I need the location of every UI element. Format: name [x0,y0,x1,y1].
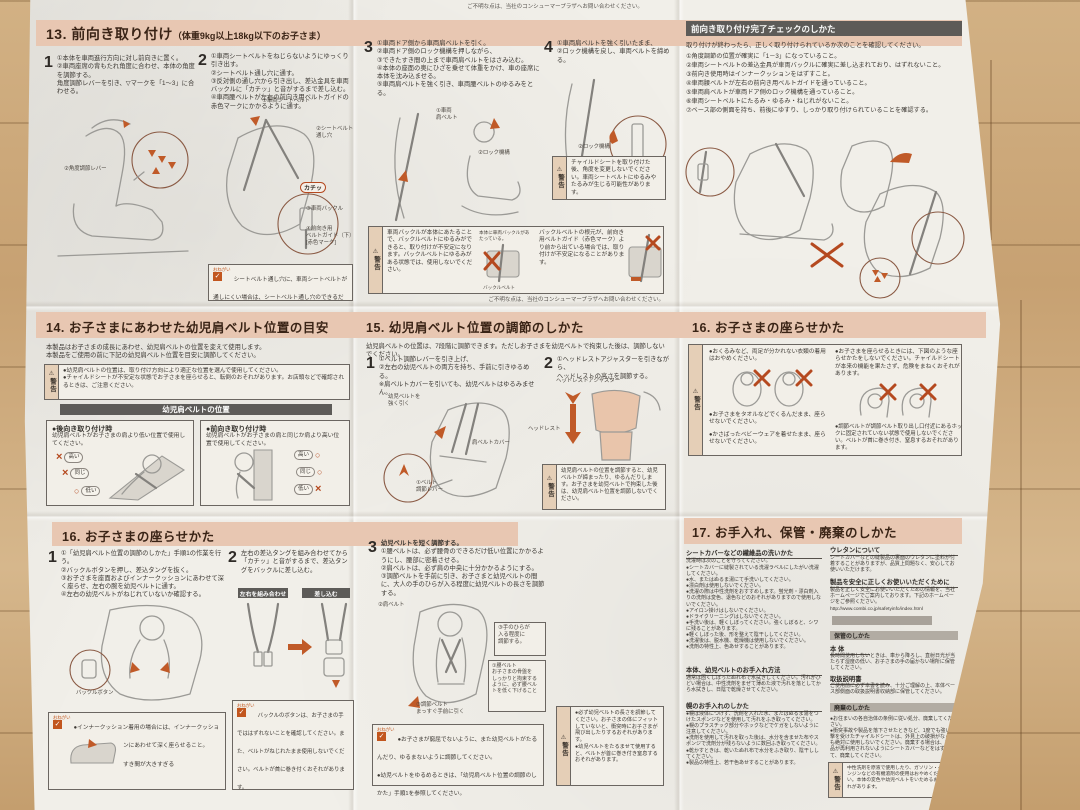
illustration-shoulder-belt-pinch [366,112,536,224]
warning-tab: ⚠ 警告 [45,365,59,399]
label-forward-belt-guide: ④前向き用 ベルトガイド（下） [赤色マーク] [306,226,355,246]
illustration-buckle-loose [481,243,525,283]
warning-triangle-icon: ⚠ [833,769,838,775]
section13-title-sub: （体重9kg以上18kg以下のお子さま） [173,31,326,41]
warning-tab: ⚠ 警告 [689,345,703,455]
warning-seating-content: ●おくるみなど、両足が分かれない衣類の着用はおやめください。 ●お子さまをタオル… [703,345,961,455]
label-pull-belt: 幼児ベルトを 強く引く [388,394,420,408]
warning-buckle-text-b: バックルベルトの根元が、前向き用ベルトガイド（赤色マーク）より前から出ている場合… [535,227,631,270]
check-item: ⑤車両肩ベルトが車両ドア側のロック機構を通っていること。 [686,89,960,97]
warning-word: 警告 [559,742,569,757]
step-4-text: ①車両肩ベルトを強く引いたまま、 ②ロック機構を戻し、車両ベルトを締める。 [557,40,672,65]
warning-belt-adjust-text: 幼児肩ベルトの位置を調節すると、幼児ベルトが締まったり、ゆるんだりします。お子さ… [557,465,665,509]
warning-triangle-icon: ⚠ [693,389,698,395]
mark-row-high-fwd: 高い ○ [294,450,320,460]
onegai-box-belt-slot: おねがい ✓ シートベルト通し穴に、車両シートベルトが通しにくい場合は、シートベ… [208,264,353,301]
label-belt-slot: ②シートベルト 通し穴 [316,126,356,140]
warning-tab: ⚠ 警告 [557,707,571,785]
label-shoulder-belt: ②肩ベルト [378,602,404,609]
caption-buckle-belt: バックルベルト [483,285,515,291]
disposal-item: ●お住まいの各自治体の条例に従い処分、廃棄してください。 [830,716,956,728]
hood-item: ●幌のプラスチック部分やホックなどでケガをしないように注意してください。 [686,723,822,735]
check-section-header-text: 前向き取り付け完了チェックのしかた [691,23,836,35]
checkmark-icon: ✓ [213,272,222,281]
o-mark: ○ [74,487,79,496]
bar-combine-tongues: 左右を組み合わせ [238,588,288,598]
seating-bullet-1: ●おくるみなど、両足が分かれない衣類の着用はおやめください。 [705,346,831,367]
pill-same: 同じ [70,468,89,478]
storage-bar-text: 保管のしかた [834,631,870,640]
step16-2-number: 2 [228,550,237,575]
illustration-tongue-buckle [238,602,354,694]
label-adjust-belt: ③調節ベルト まっすぐ手前に引く [416,702,464,716]
step16-1-text: ①「幼児肩ベルト位置の調節のしかた」手順1の作業を行う。 ②バックルボタンを押し… [61,550,230,600]
belt-position-bar: 幼児肩ベルトの位置 [60,404,332,415]
top-contact-note: ご不明な点は、当社のコンシューマープラザへお問い合わせください。 [390,2,720,10]
section13-title: 13. 前向き取り付け（体重9kg以上18kg以下のお子さま） [46,24,326,44]
warning-box-harness-length: ⚠ 警告 ●必ず幼児ベルトの長さを調節してください。お子さまの体にフィットしてい… [556,706,664,786]
label-vehicle-buckle: ③車両バックル [306,206,343,213]
warning-box-solvent: ⚠ 警告 中性洗剤を原液で使用したり、ガソリン・ベンジンなどの有機溶剤の使用はお… [828,762,948,798]
step16-3-number: 3 [368,540,377,598]
storage-bar: 保管のしかた [830,631,958,640]
step16-3-title: 幼児ベルトを短く調節する。 [381,540,463,547]
pill-high: 高い [294,450,313,460]
step16-3-wrap: 幼児ベルトを短く調節する。 ①腰ベルトは、必ず腰骨のできるだけ低い位置にかかるよ… [381,540,548,598]
label-click-sound: カチッ [300,182,326,193]
label-vehicle-shoulder-belt: ①車両 肩ベルト [436,108,470,122]
step16-3-text: ①腰ベルトは、必ず腰骨のできるだけ低い位置にかかるようにし、腰部に密着させる。 … [381,548,545,596]
callout-palm-text: ③手のひらが 入る程度に 調節する。 [498,625,544,645]
fold-crease-vertical [674,0,684,810]
checkmark-icon: ✓ [53,720,62,729]
onegai-box-inner-cushion: おねがい ✓ ●インナークッション着用の場合には、インナークッションにあわせて深… [48,712,226,790]
illustration-seat-recline [48,108,198,266]
step-3-number: 3 [364,40,373,98]
section17-title-text: 17. お手入れ、保管・廃棄のしかた [692,526,897,540]
step-4: 4 ①車両肩ベルトを強く引いたまま、 ②ロック機構を戻し、車両ベルトを締める。 [544,40,672,65]
label-headrest-adjuster: ヘッドレストアジャスター [556,378,620,385]
illustration-check-overview [684,134,964,298]
unit-text: 長時間使用しないときは、車から降ろし、直射日光が当たらず湿度の低い、お子さまの手… [830,653,958,671]
disposal-list: ●お住まいの各自治体の条例に従い処分、廃棄してください。 ●衝突事故や製品を落下… [830,716,956,759]
bar-combine-text: 左右を組み合わせ [240,589,286,598]
wash-item: ●洗濯の際は中性洗剤をおすすめします。蛍光剤・漂白剤入りの洗剤は変色、退色などの… [686,589,822,607]
pill-same: 同じ [296,467,315,477]
hood-item: ●製品の特性上、若干色あせすることがあります。 [686,760,822,766]
warning-word: 警告 [371,256,381,271]
illustration-belt-loosen [382,392,532,508]
warning-triangle-icon: ⚠ [561,735,566,741]
section16-title: 16. お子さまの座らせかた [692,317,845,337]
check-item: ⑦ベース部の側面を持ち、前後にゆすり、しっかり取り付けられていることを確認する。 [686,107,960,115]
warning-triangle-icon: ⚠ [557,167,562,173]
body-care-text: 通常は固くしぼったぬれ布で水拭きしてください。汚れがひどい場合は、中性洗剤をまぜ… [686,675,822,693]
hood-item: ●洗剤を使用して汚れを取った後は、水分を含ませた布やスポンジで洗剤分が残らないよ… [686,735,822,747]
wash-item: ●洗剤の特性上、色あせすることがあります。 [686,644,822,650]
illustration-bad-seating-x [855,381,935,419]
warning-tab: ⚠ 警告 [829,763,843,797]
illustration-swaddled-baby-x [727,367,811,407]
illustration-rear-facing-child [92,448,188,502]
wash-item: ●シートカバーに縫製されている洗濯ラベルにしたがい洗濯してください。 [686,565,822,577]
photo-stage: ご不明な点は、当社のコンシューマープラザへお問い合わせください。 13. 前向き… [0,0,1080,810]
warning-word: 警告 [47,378,57,393]
check-item: ②車両シートベルトの差込金具が車両バックルに確実に差し込まれており、はずれないこ… [686,62,960,70]
onegai-icon: おねがい ✓ [213,268,231,281]
section17-title: 17. お手入れ、保管・廃棄のしかた [692,522,897,542]
section14-title: 14. お子さまにあわせた幼児肩ベルト位置の目安 [46,317,329,337]
manual-text: ご使用前に必ず本書を読み、十分ご理解の上、本体ベース部側面の取扱説明書収納部に保… [830,683,958,695]
onegai-icon: おねがい ✓ [53,716,71,729]
warning-buckle-content: 車両バックルが本体にあたることで、バックルベルトにゆるみができると、取り付けが不… [383,227,663,293]
manual-sheet: ご不明な点は、当社のコンシューマープラザへお問い合わせください。 13. 前向き… [0,0,1080,810]
x-mark: × [315,484,321,495]
illustration-guide-position [625,233,665,285]
step16-1-number: 1 [48,550,57,600]
safety-url: http://www.combi.co.jp/safetyinfo/index.… [830,607,958,613]
warning-angle-text: チャイルドシートを取り付けた後、角度を変更しないでください。車両シートベルトにゆ… [567,157,665,199]
warning-tab: ⚠ 警告 [543,465,557,509]
disposal-bar: 廃棄のしかた [830,703,958,712]
illustration-forward-facing-child [210,448,290,502]
checkmark-icon: ✓ [377,732,386,741]
wood-plank-joint [990,60,992,240]
wash-list: ●シートカバーに縫製されている洗濯ラベルにしたがい洗濯してください。 ●水、また… [686,565,822,650]
pill-low: 低い [81,486,100,496]
x-mark: × [62,468,68,479]
label-shoulder-belt-cover: 肩ベルトカバー [472,440,510,447]
wash-item: ●手洗い後は、軽くしぼってください。強くしぼると、シワに残ることがあります。 [686,620,822,632]
warning-word: 警告 [555,174,565,189]
check-list: ①角度調節の位置が確実に「1－3」になっていること。 ②車両シートベルトの差込金… [686,53,960,116]
caption-gap-too-big: すき間が大きすぎる [123,762,174,769]
pill-low: 低い [294,484,313,494]
check-section-header: 前向き取り付け完了チェックのしかた [686,21,962,36]
warning-triangle-icon: ⚠ [547,476,552,482]
disposal-item: ●衝突事故や製品を落下させたときなど、1度でも強い衝撃を受けたチャイルドシートは… [830,728,956,758]
bar-insert-tongue: 差し込む [302,588,350,598]
illustration-headrest-adjust [548,386,668,464]
mid-contact-note: ご不明な点は、当社のコンシューマープラザへお問い合わせください。 [432,295,664,303]
wood-plank-joint [1020,300,1022,810]
seating-bullet-2: ●お子さまをタオルなどでくるんだまま、座らせないでください。 [705,409,831,430]
step-2-number: 2 [198,53,207,111]
step-1-number: 1 [44,55,53,96]
warning-word: 警告 [691,396,701,411]
warning-tab: ⚠ 警告 [369,227,383,293]
mark-row-high: × 高い [56,452,83,463]
onegai-box-buckle-check: おねがい ✓ バックルのボタンは、お子さまの手でははずれないことを確認してくださ… [232,700,354,790]
step16-2-text: 左右の差込タングを組み合わせてから「カチッ」と音がするまで、差込タングをバックル… [241,550,352,575]
step16-2: 2 左右の差込タングを組み合わせてから「カチッ」と音がするまで、差込タングをバッ… [228,550,352,575]
label-belt-adjust-lever: ①ベルト 調節レバー [416,480,443,494]
check-intro: 取り付けが終わったら、正しく取り付けられているか次のことを確認してください。 [686,42,960,50]
onegai-buckle-check-text: バックルのボタンは、お子さまの手でははずれないことを確認してください。また、ベル… [237,713,345,791]
step15-1-number: 1 [366,356,375,397]
label-angle-lever: ②角度調節レバー [64,166,107,173]
disposal-bar-text: 廃棄のしかた [834,703,870,712]
seating-bullet-4: ●お子さまを座らせるときには、下図のような座らせかたをしないでください。チャイル… [831,346,967,382]
check-item: ⑥車両シートベルトにたるみ・ゆるみ・ねじれがないこと。 [686,98,960,106]
onegai-box-fit: おねがい ✓ ●お子さまが窮屈でないように、また幼児ベルトがたるんだり、ゆるまな… [372,724,544,786]
seating-bullet-3: ●かさばったベビーウェアを着せたまま、座らせないでください。 [705,429,831,450]
x-mark: × [56,452,62,463]
label-vehicle-seatbelt: ①車両シートベルト [262,98,310,105]
mark-row-low-fwd: 低い × [294,484,321,495]
section16b-title-text: 16. お子さまの座らせかた [62,530,215,544]
warning-word: 警告 [831,776,841,791]
hood-item: ●乾かすときは、乾いたぬれ布で水分をふき取り、陰干ししてください。 [686,748,822,760]
warning-box-buckle: ⚠ 警告 車両バックルが本体にあたることで、バックルベルトにゆるみができると、取… [368,226,664,294]
illustration-cushion-gap [67,737,119,767]
warning-tab: ⚠ 警告 [553,157,567,199]
section16-title-text: 16. お子さまの座らせかた [692,321,845,335]
o-mark: ○ [315,451,320,460]
urethane-text: シートカバーなどの縫製品の裏面のウレタンに塗料が付着することがありますが、品質上… [830,555,958,573]
bar-insert-text: 差し込む [314,589,337,598]
o-mark: ○ [317,468,322,477]
redacted-strip [832,616,932,625]
warning-triangle-icon: ⚠ [49,371,54,377]
section14-title-text: 14. お子さまにあわせた幼児肩ベルト位置の目安 [46,321,329,335]
section14-intro: 本製品はお子さまの成長にあわせ、幼児肩ベルトの位置を変えて使用します。 本製品を… [46,344,346,361]
warning-buckle-text-a: 車両バックルが本体にあたることで、バックルベルトにゆるみができると、取り付けが不… [383,227,477,277]
step15-2-number: 2 [544,356,553,381]
warning-triangle-icon: ⚠ [373,249,378,255]
wash-intro: 洗濯時は次のことを守ってください。 [686,558,822,564]
check-item: ④車両腰ベルトが左右の前向き用ベルトガイドを通っていること。 [686,80,960,88]
label-headrest: ヘッドレスト [528,426,560,433]
section16b-title: 16. お子さまの座らせかた [62,526,215,546]
warning-solvent-text: 中性洗剤を原液で使用したり、ガソリン・ベンジンなどの有機溶剤の使用はおやめくださ… [843,763,947,797]
warning-belt-position-text: ●幼児肩ベルトの位置は、取り付け方向により適正な位置を選んで使用してください。 … [59,365,349,399]
mark-row-same-fwd: 同じ ○ [296,467,322,477]
section15-title-text: 15. 幼児肩ベルト位置の調節のしかた [366,321,584,335]
forward-facing-text: 幼児肩ベルトがお子さまの肩と同じか肩より高い位置で使用してください。 [206,433,344,448]
warning-word: 警告 [545,483,555,498]
seating-bullet-5: ●調節ベルトが調節ベルト取り出し口付近にあるホックに固定されていない状態で使用し… [831,421,967,455]
warning-box-angle: ⚠ 警告 チャイルドシートを取り付けた後、角度を変更しないでください。車両シート… [552,156,666,200]
label-buckle-button: バックルボタン [76,690,114,697]
illustration-seat-topview [68,602,216,702]
onegai-fit-text: ●お子さまが窮屈でないように、また幼児ベルトがたるんだり、ゆるまないように調節し… [377,737,537,797]
label-lock-mechanism: ②ロック機構 [478,150,510,157]
step-4-number: 4 [544,40,553,65]
warning-box-belt-position: ⚠ 警告 ●幼児肩ベルトの位置は、取り付け方向により適正な位置を選んで使用してく… [44,364,350,400]
check-item: ①角度調節の位置が確実に「1－3」になっていること。 [686,53,960,61]
label-lock-mechanism-4: ②ロック機構 [578,144,610,151]
onegai-icon: おねがい ✓ [377,728,395,741]
belt-position-bar-text: 幼児肩ベルトの位置 [162,404,230,415]
section13-title-main: 13. 前向き取り付け [46,26,173,42]
rear-facing-text: 幼児肩ベルトがお子さまの肩より低い位置で使用してください。 [52,433,188,448]
step-1-text: ①本体を車両進行方向に対し前向きに置く。 ②車両座席の背もたれ角度に合わせ、本体… [57,55,196,96]
step16-1: 1 ①「幼児肩ベルト位置の調節のしかた」手順1の作業を行う。 ②バックルボタンを… [48,550,230,600]
caption-buckle-touching: 本体に車両バックルがあたっている。 [479,230,531,241]
hood-care-list: ●幌は液体につけず、洗剤を入れた水、またはぬるま湯をつけたスポンジなどを使用して… [686,711,822,766]
step-3: 3 ①車両ドア側から車両肩ベルトを引く。 ②車両ドア側のロック機構を押しながら、… [364,40,542,98]
warning-harness-length-text: ●必ず幼児ベルトの長さを調節してください。お子さまの体にフィットしていないと、衝… [571,707,663,785]
warning-box-belt-adjust: ⚠ 警告 幼児肩ベルトの位置を調節すると、幼児ベルトが締まったり、ゆるんだりしま… [542,464,666,510]
callout-waist-text: ①腰ベルト お子さまの骨盤を しっかりと拘束する ように、必ず腰ベル トを低く下… [492,663,544,694]
warning-box-seating: ⚠ 警告 ●おくるみなど、両足が分かれない衣類の着用はおやめください。 ●お子さ… [688,344,962,456]
mark-row-same: × 同じ [62,468,89,479]
onegai-icon: おねがい ✓ [237,704,255,717]
hood-item: ●幌は液体につけず、洗剤を入れた水、またはぬるま湯をつけたスポンジなどを使用して… [686,711,822,723]
step16-3: 3 幼児ベルトを短く調節する。 ①腰ベルトは、必ず腰骨のできるだけ低い位置にかか… [368,540,548,598]
check-item: ③前向き使用時はインナークッションをはずすこと。 [686,71,960,79]
step-3-text: ①車両ドア側から車両肩ベルトを引く。 ②車両ドア側のロック機構を押しながら、 ③… [377,40,542,98]
pill-high: 高い [64,452,83,462]
safety-text: 製品を正しく安全にお使いいただくための情報を、当社ホームページでご案内しておりま… [830,587,958,605]
mark-row-low: ○ 低い [74,486,100,496]
step-1: 1 ①本体を車両進行方向に対し前向きに置く。 ②車両座席の背もたれ角度に合わせ、… [44,55,196,96]
section15-title: 15. 幼児肩ベルト位置の調節のしかた [366,317,584,337]
checkmark-icon: ✓ [237,708,246,717]
